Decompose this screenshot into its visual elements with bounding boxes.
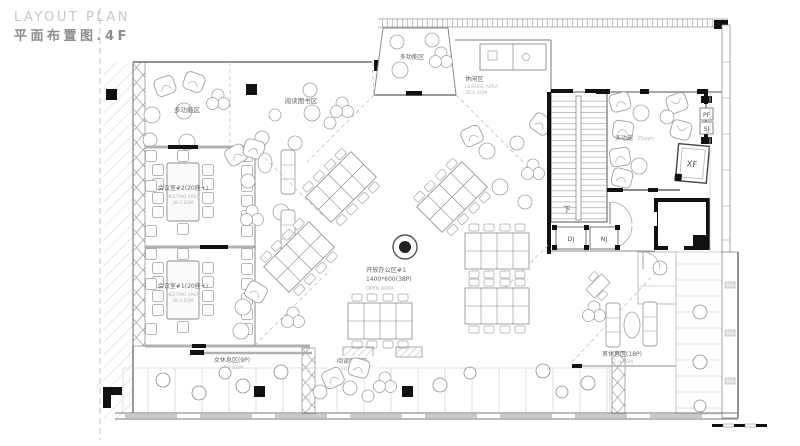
floor-plan-drawing: 多功能区 阅读图书区 多功能区 xyxy=(0,0,800,446)
label-meeting2-area: 38.0 SQM xyxy=(172,200,193,206)
label-women-rest: 女休息区(9P) xyxy=(214,356,250,364)
scale-bar xyxy=(712,424,767,427)
restroom-area xyxy=(638,252,676,304)
label-multifunction-left: 多功能区 xyxy=(174,105,201,114)
label-leisure-sub: LEISURE AREA xyxy=(465,84,499,90)
label-stair-down: 下 xyxy=(563,205,571,214)
label-men-rest: 男休息区(18P) xyxy=(602,350,642,358)
label-leisure-area: 38.0 SQM xyxy=(465,90,487,96)
label-multifunction-top: 多功能区 xyxy=(400,53,425,61)
men-rest-area: 男休息区(18P) 57.0 SQM xyxy=(572,269,676,368)
label-meeting2: 会议室#2(20座+) xyxy=(158,184,208,192)
label-open-office-sub: OPEN AREA xyxy=(366,286,394,292)
label-meeting1-area: 38.0 SQM xyxy=(172,298,193,304)
elevator-shaft xyxy=(652,200,708,250)
label-open-office: 开放办公区#1 xyxy=(366,266,406,274)
label-meeting1-sub: MEETING AREA xyxy=(166,292,199,298)
label-shaft-dj: DJ xyxy=(568,235,575,243)
label-multifunction-right: 多功能 xyxy=(615,134,633,142)
label-shaft-nj: NJ xyxy=(601,235,608,243)
label-meeting2-sub: MEETING AREA xyxy=(166,194,199,200)
floor-plan-canvas: LAYOUT PLAN 平面布置图.4F xyxy=(0,0,800,446)
label-leisure: 休闲区 xyxy=(465,75,484,83)
label-shaft-pf: PF xyxy=(703,112,711,119)
meeting-room-1: 会议室#1(20座+) MEETING AREA 38.0 SQM xyxy=(146,249,253,335)
bottom-facade xyxy=(115,413,767,427)
room-reading-top: 阅读图书区 xyxy=(255,62,374,150)
label-reading-top: 阅读图书区 xyxy=(285,96,318,105)
label-meeting1: 会议室#1(20座+) xyxy=(158,282,208,290)
label-shaft-sj: SJ xyxy=(704,126,710,133)
label-open-office-spec: 1400*600(38P) xyxy=(366,276,412,283)
shafts-dj-nj: DJ NJ xyxy=(551,225,655,251)
label-shaft-xf: XF xyxy=(686,159,698,170)
shaft-xf: XF xyxy=(674,144,709,184)
label-men-rest-area: 57.0 SQM xyxy=(611,359,633,365)
label-multifunction-right-area: 25sqm xyxy=(637,136,654,142)
